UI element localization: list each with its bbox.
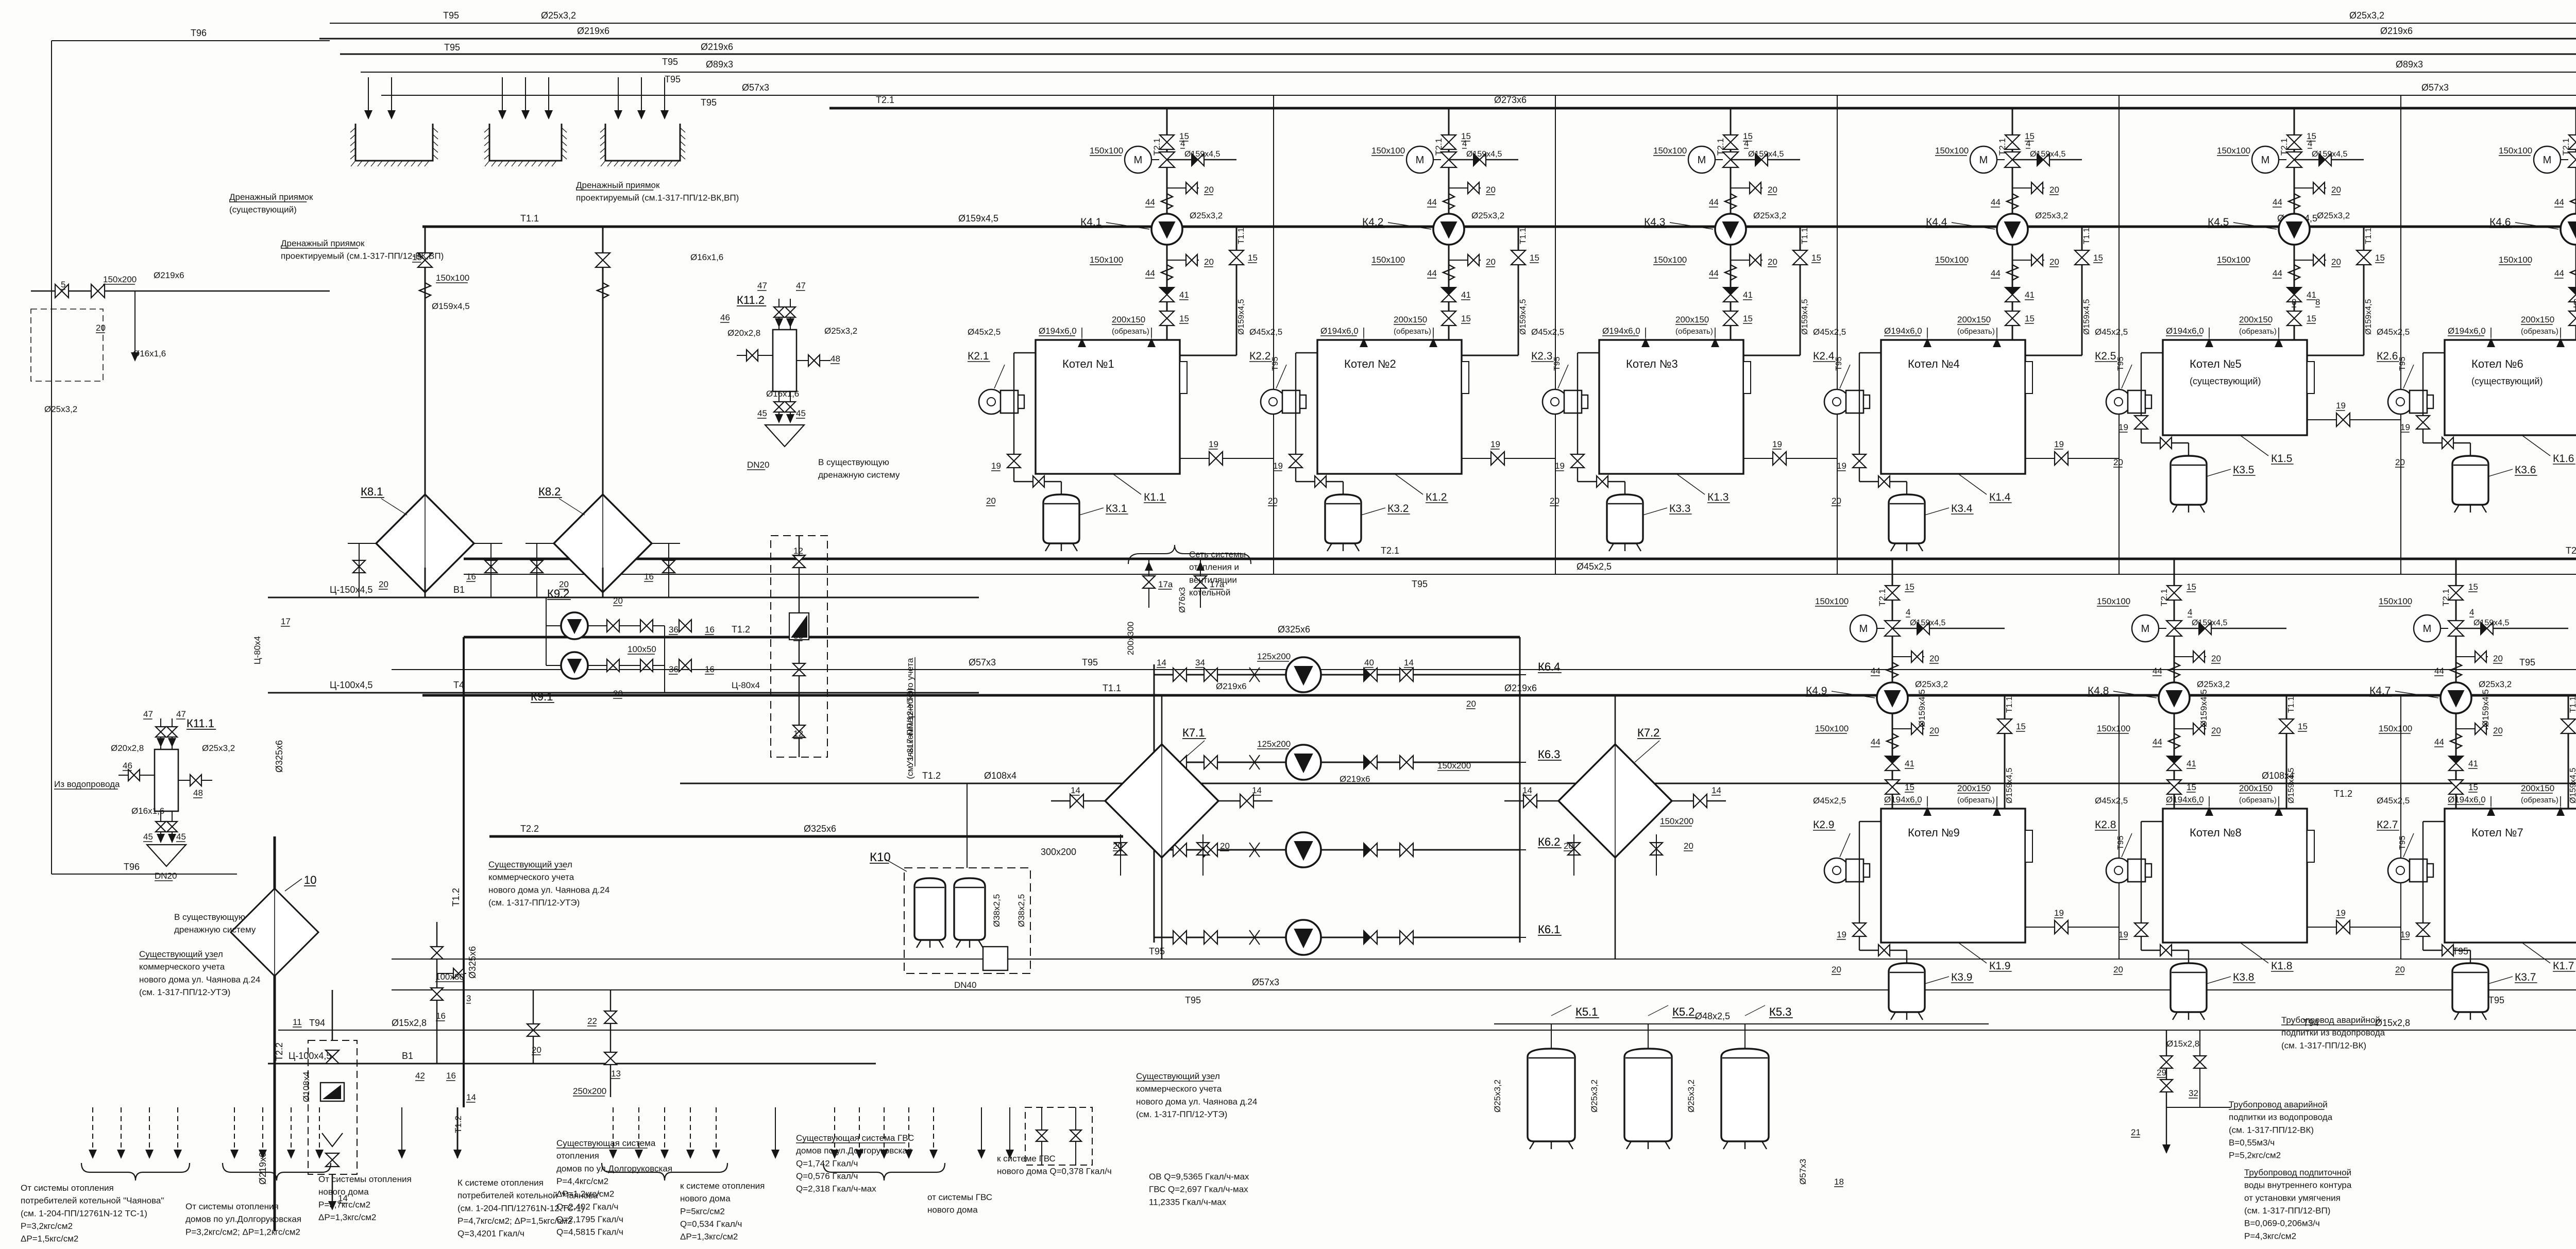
pipe-label: Т95 [2116,835,2125,850]
valve-icon [1229,250,1244,265]
valve-icon [2357,250,2371,265]
pipe-label: Ø194x6,0 [1884,326,1922,336]
burner-pos-label: К2.6 [2377,350,2398,362]
burner-icon [1863,395,1870,408]
callout-label: 45 [757,408,767,418]
valve-icon [1750,182,1761,194]
pipe-label: Т2.1 [2159,589,2169,606]
callout-label: DN20 [747,460,769,470]
bus-label: 300x200 [1041,847,1076,857]
annotation-text: (см. 1-317-ПП/12-ВП) [2244,1206,2330,1216]
pipe-label: 150x100 [2499,146,2532,156]
burner-pos-label: К2.7 [2377,819,2398,831]
valve-icon [326,1153,339,1167]
pipe-label: 19 [2054,439,2064,449]
valve-icon [2134,416,2148,429]
pipe-label: 19 [2400,422,2410,432]
flow-arrow [387,110,396,119]
pipe-label: Ø45x2,5 [1813,796,1846,806]
pipe-label: 15 [2307,314,2316,323]
pipe-label: (обрезать) [1394,327,1431,336]
check-valve-icon [2449,756,2463,763]
boiler-name: Котел №9 [1908,826,1960,839]
pipe-label: 15 [1743,131,1753,141]
equip-label: К5.2 [1672,1005,1694,1018]
check-valve-icon [2167,756,2181,763]
bus-label: Ø219x6 [701,42,733,52]
pipe-label: 19 [2400,930,2410,939]
annotation-text: нового дома ул. Чаянова д.24 [488,885,609,895]
pipe-line [1180,741,1205,762]
bus-label: Ø45x2,5 [1577,561,1612,572]
valve-icon [596,253,610,267]
boiler-side-tab [1180,362,1187,393]
callout-label: 17 [281,617,291,626]
valve-icon [2075,250,2089,265]
annotation-text: Существующая система ГВС [796,1133,914,1143]
annotation-text: (см. 1-317-ПП/12-УТЭ) [1136,1109,1227,1119]
check-valve-icon [2287,287,2301,295]
burner-pos-label: К2.4 [1813,350,1835,362]
check-valve-icon [1723,287,1738,295]
pipe-label: 20 [2331,185,2341,195]
callout-label: 47 [757,281,767,290]
leader-line [1676,474,1705,494]
motor-label: М [1859,623,1868,635]
pipe-label: Т2.1 [1997,138,2007,156]
pipe-label: Ø159x4,5 [1519,299,1528,335]
valve-icon [785,402,795,412]
pipe-label: 15 [2468,582,2478,592]
motor-label: М [2261,155,2270,166]
check-valve-icon [1160,287,1174,295]
burner-icon [1564,390,1582,413]
callout-label: 20 [613,596,623,606]
pipe-label: Ø45x2,5 [2095,796,2128,806]
pit-hatch [418,161,422,166]
annotation-text: Трубопровод подпиточной [2244,1168,2351,1177]
pit-hatch [425,161,429,166]
bus-label: Т95 [2519,657,2535,668]
bus-label: Ø57x3 [742,82,769,93]
pipe-label: 19 [1555,461,1565,471]
check-valve-icon [1160,295,1174,302]
tank-legs [1723,1141,1767,1149]
pipe-label: 41 [1905,759,1914,768]
expansion-tank-icon [1889,494,1925,543]
equip-label: К5.3 [1769,1005,1791,1018]
callout-label: Ø25x3,2 [1686,1080,1696,1113]
pipe-line [559,499,585,515]
annotation-text: коммерческого учета [1136,1084,1222,1094]
bus-label: Ø325x6 [804,824,836,834]
leader-line [2488,977,2513,984]
valve-icon [1597,476,1608,487]
check-valve-icon [1885,763,1900,771]
motor-label: М [1134,155,1143,166]
expansion-tank-icon [2171,963,2207,1012]
valve-icon [774,402,784,412]
annotation-text: дренажную систему [174,925,256,935]
pipe-label: 19 [991,461,1001,471]
boiler-side-tab [2307,830,2314,862]
valve-icon [1442,311,1456,326]
check-valve-icon [1370,843,1377,857]
motor-label: М [2423,623,2432,635]
burner-icon [2145,395,2151,408]
callout-label: Ø159x4,5 [2481,689,2490,727]
burner-pos-label: К2.9 [1813,819,1834,831]
pipe-label: 19 [2336,908,2346,918]
valve-icon [1007,454,1021,468]
annotation-text: нового дома [927,1205,978,1215]
burner-icon [1018,395,1024,408]
bus-label: Т4 [453,680,464,690]
pipe-label: 4 [2188,607,2192,617]
valve-icon [1878,945,1890,956]
pipe-label: Т95 [2398,356,2407,371]
burner-icon [1282,390,1300,413]
bus-label: В1 [402,1051,413,1061]
pipe-label: 20 [1550,496,1560,506]
callout-label: Ø16x1,6 [133,349,166,358]
callout-label: 46 [720,313,730,322]
callout-label: 16 [466,572,476,581]
annotation-text: от установки умягчения [2244,1193,2341,1203]
pipe-label: 150x100 [1653,255,1687,265]
annotation-text: Р=4,4кгс/см2 [556,1176,608,1186]
bus-label: Ø25x3,2 [2349,10,2384,21]
pipe-label: 19 [1273,461,1283,471]
pipe-label: 15 [1461,131,1471,141]
bus-label: Ø219x6 [2380,26,2413,36]
boiler-name: Котел №4 [1908,357,1960,370]
bus-label: Т95 [1185,995,1201,1005]
pipe-label: (обрезать) [2521,327,2558,336]
valve-icon [604,1011,617,1023]
pipe-label: 20 [1832,496,1841,506]
valve-icon [1240,794,1253,808]
pump-pos-label: К4.2 [1362,216,1383,228]
valve-icon [2160,1080,2173,1092]
pipe-label: 200x150 [1112,315,1145,324]
pit-hatch [384,161,389,166]
flow-arrow [498,110,506,119]
callout-label: 16 [705,625,715,635]
valve-icon [1468,254,1479,266]
valve-icon [2313,254,2325,266]
leader-line [2240,435,2268,456]
boiler-pos-label: К1.5 [2271,453,2292,465]
boiler-name: Котел №6 [2471,357,2523,370]
annotation-text: Q=0,576 Гкал/ч [796,1171,858,1181]
burner-icon [1846,859,1863,882]
pipe-label: 44 [1709,197,1719,207]
boiler-name: Котел №8 [2190,826,2242,839]
pipe-label: Ø25x3,2 [1471,211,1504,220]
pipe-label: (обрезать) [2521,796,2558,805]
flow-arrow [2162,1144,2171,1154]
bus-label: Ø325x6 [274,740,284,773]
annotation-text: От системы отопления [318,1174,412,1184]
boiler-name: Котел №3 [1626,357,1678,370]
valve-icon [2416,923,2430,936]
check-valve-icon [1723,295,1738,302]
flow-arrow [521,110,530,119]
check-valve-icon [2005,287,2020,295]
pipe-label: 44 [1145,268,1155,278]
pit-hatch [364,161,369,166]
bus-label: Ø15x2,8 [2375,1018,2410,1028]
pipe-label: Ø194x6,0 [1320,326,1359,336]
valve-icon [2160,437,2172,449]
pipe-label: 20 [2113,457,2123,467]
bus-label: Ø89x3 [2396,59,2423,70]
valve-icon [1070,794,1083,808]
tank-legs [1609,543,1641,551]
flow-arrow [786,318,794,328]
drain-pit [605,124,680,161]
pit-hatch [634,161,639,166]
pit-hatch [525,161,530,166]
expansion-tank-icon [1721,1049,1769,1141]
annotation-text: нового дома ул. Чаянова д.24 [1136,1097,1257,1106]
burner-icon [1582,395,1588,408]
pipe-label: 15 [1179,131,1189,141]
check-valve-icon [1370,931,1377,944]
bus-label: Т1.2 [451,888,461,906]
equip-label: К11.2 [737,294,765,306]
callout-label: 3 [466,994,471,1003]
bus-label: Т2.1 [2566,545,2576,556]
annotation-text: ΔР=1,3кгс/см2 [318,1212,376,1222]
pipe-label: 15 [2375,253,2385,263]
pipe-label: 150x100 [1935,255,1969,265]
valve-icon [2160,945,2172,956]
valve-icon [1173,931,1187,944]
valve-icon [679,620,691,632]
valve-icon [747,350,758,361]
callout-label: Ø25x3,2 [44,404,77,414]
annotation-text: отопления и [1189,562,1239,572]
leader-line [1395,474,1423,494]
boiler-side-tab [1462,362,1469,393]
valve-icon [2031,254,2043,266]
callout-label: 16 [436,1011,446,1021]
callout-label: 17а [1158,579,1173,589]
callout-label: 150x200 [103,275,137,284]
tank-legs [2454,505,2486,512]
valve-icon [2193,651,2205,662]
callout-label: 46 [123,761,132,771]
callout-label: 22 [587,1016,597,1026]
equip-label: К10 [870,850,891,864]
pit-hatch [391,161,396,166]
valve-icon [156,727,166,737]
check-valve-icon [1364,756,1370,769]
burner-icon [2128,859,2145,882]
motor-label: М [1416,155,1425,166]
pipe-label: 44 [1709,268,1719,278]
expansion-tank-icon [1528,1049,1575,1141]
pit-hatch [532,161,536,166]
tank-legs [2454,1012,2486,1020]
pipe-label: 19 [2054,908,2064,918]
pipe-label: Ø159x4,5 [2312,150,2347,159]
pipe-label: Ø159x4,5 [2569,768,2576,803]
callout-label: 36 [669,664,679,674]
callout-label: 14 [1404,658,1414,668]
valve-icon [1491,452,1504,465]
expansion-tank-icon [1889,963,1925,1012]
valve-icon [1033,476,1044,487]
pipe-label: (обрезать) [2239,796,2277,805]
pit-hatch [398,161,402,166]
pipe-label: Ø25x3,2 [1915,679,1948,689]
annotation-text: 11,2335 Гкал/ч-мах [1149,1197,1227,1207]
bus-label: Т95 [662,57,678,67]
valve-icon [2336,920,2350,934]
pipe-label: Ø159x4,5 [2005,768,2014,803]
leader-line [2240,943,2268,963]
pit-hatch [358,161,362,166]
callout-label: Ø25x3,2 [824,326,857,336]
callout-label: Ø20x2,8 [111,743,144,753]
pipe-label: Ø25x3,2 [2035,211,2068,220]
annotation-text: Р=5кгс/см2 [680,1206,725,1216]
pipe-label: Ø25x3,2 [2317,211,2350,220]
callout-label: Ц-80x4 [252,636,262,664]
leader-line [1113,474,1141,494]
expansion-tank-icon [2171,456,2207,505]
drain-funnel-icon [765,425,804,447]
valve-icon [1511,250,1526,265]
callout-label: Ø25x3,2 [1589,1080,1599,1113]
pipe-label: 15 [2298,722,2308,731]
flow-arrow [168,834,176,843]
callout-label: 125x200 [1257,739,1291,749]
callout-label: 47 [176,709,186,719]
annotation-text: В=0,069-0,206м3/ч [2244,1219,2320,1228]
pump-pos-label: К4.7 [2369,685,2391,697]
callout-label: 20 [96,323,106,333]
group-brace [81,1163,190,1180]
pit-hatch [351,161,355,166]
pipe-label: 41 [2187,759,2196,768]
pit-hatch [538,161,543,166]
callout-label: Т1.2 [453,1116,463,1133]
boiler-pos-label: К1.7 [2553,960,2574,972]
pipe-label: 15 [1179,314,1189,323]
pump-pos-label: К4.3 [1644,216,1665,228]
tank-pos-label: К3.3 [1669,503,1690,515]
callout-label: 14 [1252,785,1262,795]
pit-hatch [601,161,605,166]
bus-label: Т1.1 [520,213,539,224]
pipe-label: 15 [2468,782,2478,792]
pipe-label: (обрезать) [1957,327,1995,336]
annotation-text: нового дома [680,1194,731,1204]
check-valve-icon [2005,295,2020,302]
pit-hatch [485,161,489,166]
flow-arrow [230,1150,239,1159]
tank-pos-label: К3.4 [1951,503,1973,515]
bus-label: Ø159x4,5 [958,213,998,224]
callout-label: 32 [2189,1088,2198,1098]
callout-label: 14 [1711,785,1721,795]
pipe-label: Т95 [2398,835,2407,850]
boiler-pos-label: К1.4 [1989,491,2011,503]
callout-label: Ø219x6 [154,270,184,280]
callout-label: 14 [1157,658,1166,668]
pipe-label: 44 [2434,666,2444,676]
pipe-label: Ø159x4,5 [2030,150,2065,159]
pipe-label: 20 [1929,726,1939,735]
pipe-label: 44 [2153,666,2162,676]
check-valve-icon [2569,287,2576,295]
equip-label: К9.2 [547,587,569,600]
pipe-label: Ø45x2,5 [1531,327,1564,337]
burner-icon [2410,859,2427,882]
valve-icon [2160,1056,2173,1068]
pipe-label: Ø159x4,5 [2192,619,2227,627]
bus-label: Т2.1 [1381,545,1399,556]
expansion-tank-icon [2452,456,2488,505]
pipe-label: Т2.1 [1152,138,1162,156]
pit-hatch [371,161,376,166]
pump-pos-label: К4.9 [1806,685,1827,697]
pit-hatch [668,161,672,166]
callout-label: 36 [669,625,679,635]
valve-icon [1400,756,1413,769]
boiler-pos-label: К1.8 [2271,960,2292,972]
pipe-label: 15 [1530,253,1539,263]
valve-icon [1204,931,1217,944]
pit-hatch [641,161,646,166]
pipe-label: 19 [2336,401,2346,410]
motor-label: М [2141,623,2150,635]
valve-icon [2167,586,2181,600]
bus-label: Т1.1 [1103,683,1121,693]
annotation-text: (см. 1-317-ПП/12-УТЭ) [488,898,580,908]
valve-icon [2416,416,2430,429]
callout-label: 16 [705,664,715,674]
valve-icon [1204,756,1217,769]
annotation-text: В существующую [818,457,889,467]
pipe-label: 150x100 [1371,255,1405,265]
pipe-label: Ø194x6,0 [2448,326,2486,336]
burner-icon [2427,395,2433,408]
burner-icon [1863,864,1870,877]
annotation-text: к системе отопления [680,1181,765,1191]
equip-label: К8.2 [538,485,561,498]
bus-label: Т95 [2488,995,2504,1005]
callout-label: 150x100 [436,273,469,283]
motor-label: М [1698,155,1706,166]
callout-label: DN20 [155,871,177,881]
valve-icon [2279,719,2294,733]
tank-legs [1530,1141,1573,1149]
valve-icon [1750,254,1761,266]
pipe-label: 20 [2395,965,2405,974]
bus-label: Т2.1 [876,95,894,105]
pipe-label: 20 [2113,965,2123,974]
boiler-note: (существующий) [2471,376,2543,386]
valve-icon [1878,476,1890,487]
check-valve-icon [1364,843,1370,857]
boiler-pos-label: К1.2 [1426,491,1447,503]
pipe-label: Т95 [1271,356,1280,371]
